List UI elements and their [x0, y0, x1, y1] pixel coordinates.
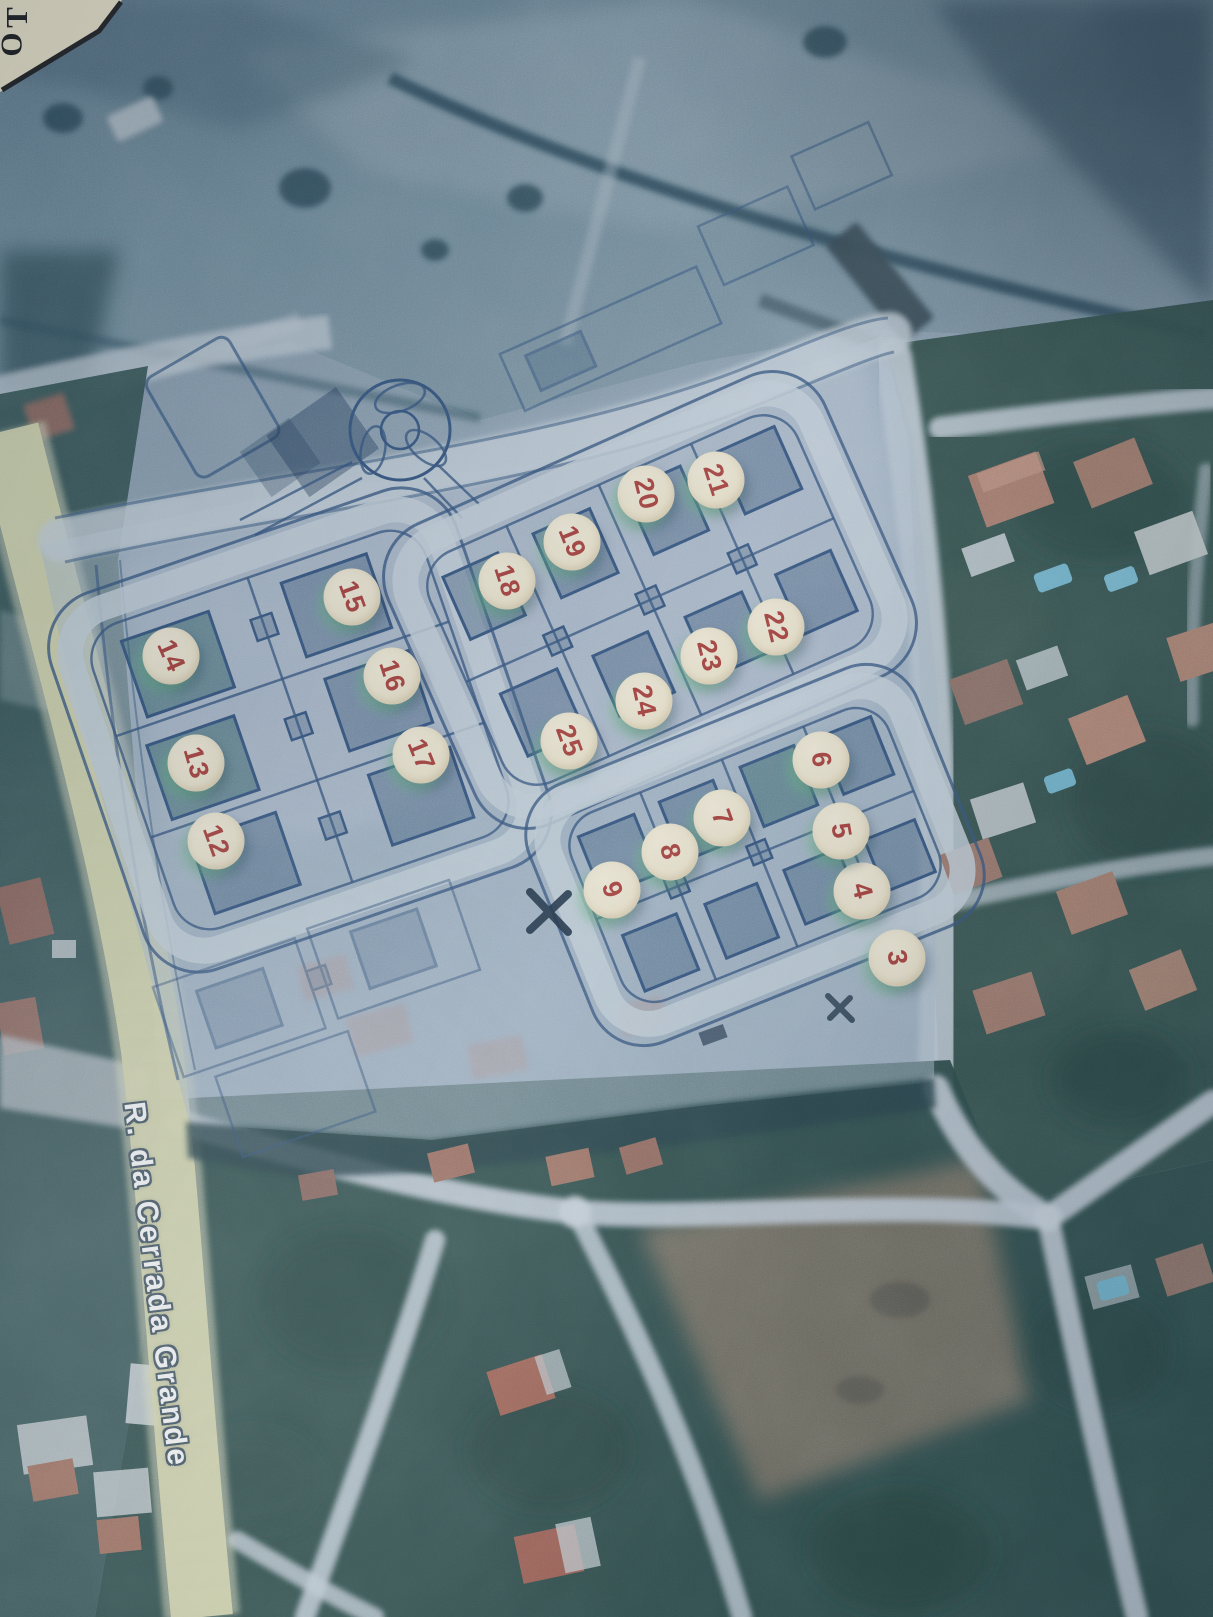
- aerial-map-photo: 3 4 5 6 7 8 9 12 13 14: [0, 0, 1213, 1617]
